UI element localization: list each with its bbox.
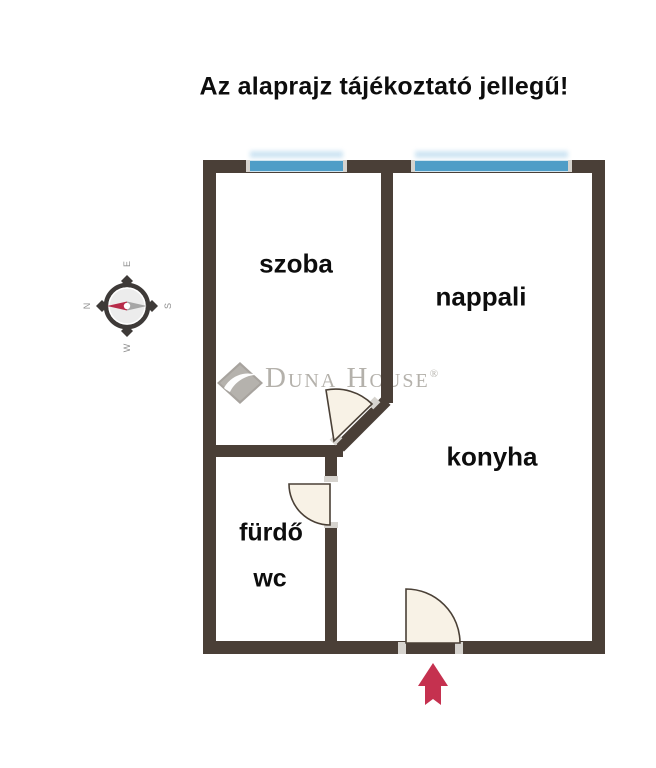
szoba-door-swing bbox=[326, 389, 372, 441]
entrance-arrow-icon bbox=[418, 663, 448, 705]
doors-overlay bbox=[0, 0, 656, 768]
entrance-door-swing bbox=[406, 589, 460, 643]
room-label-wc: wc bbox=[253, 565, 286, 594]
room-label-szoba: szoba bbox=[259, 249, 333, 280]
room-label-furdo: fürdő bbox=[239, 519, 303, 548]
room-label-nappali: nappali bbox=[435, 282, 526, 313]
room-label-konyha: konyha bbox=[446, 442, 537, 473]
floorplan-canvas: Az alaprajz tájékoztató jellegű! N E S W… bbox=[0, 0, 656, 768]
